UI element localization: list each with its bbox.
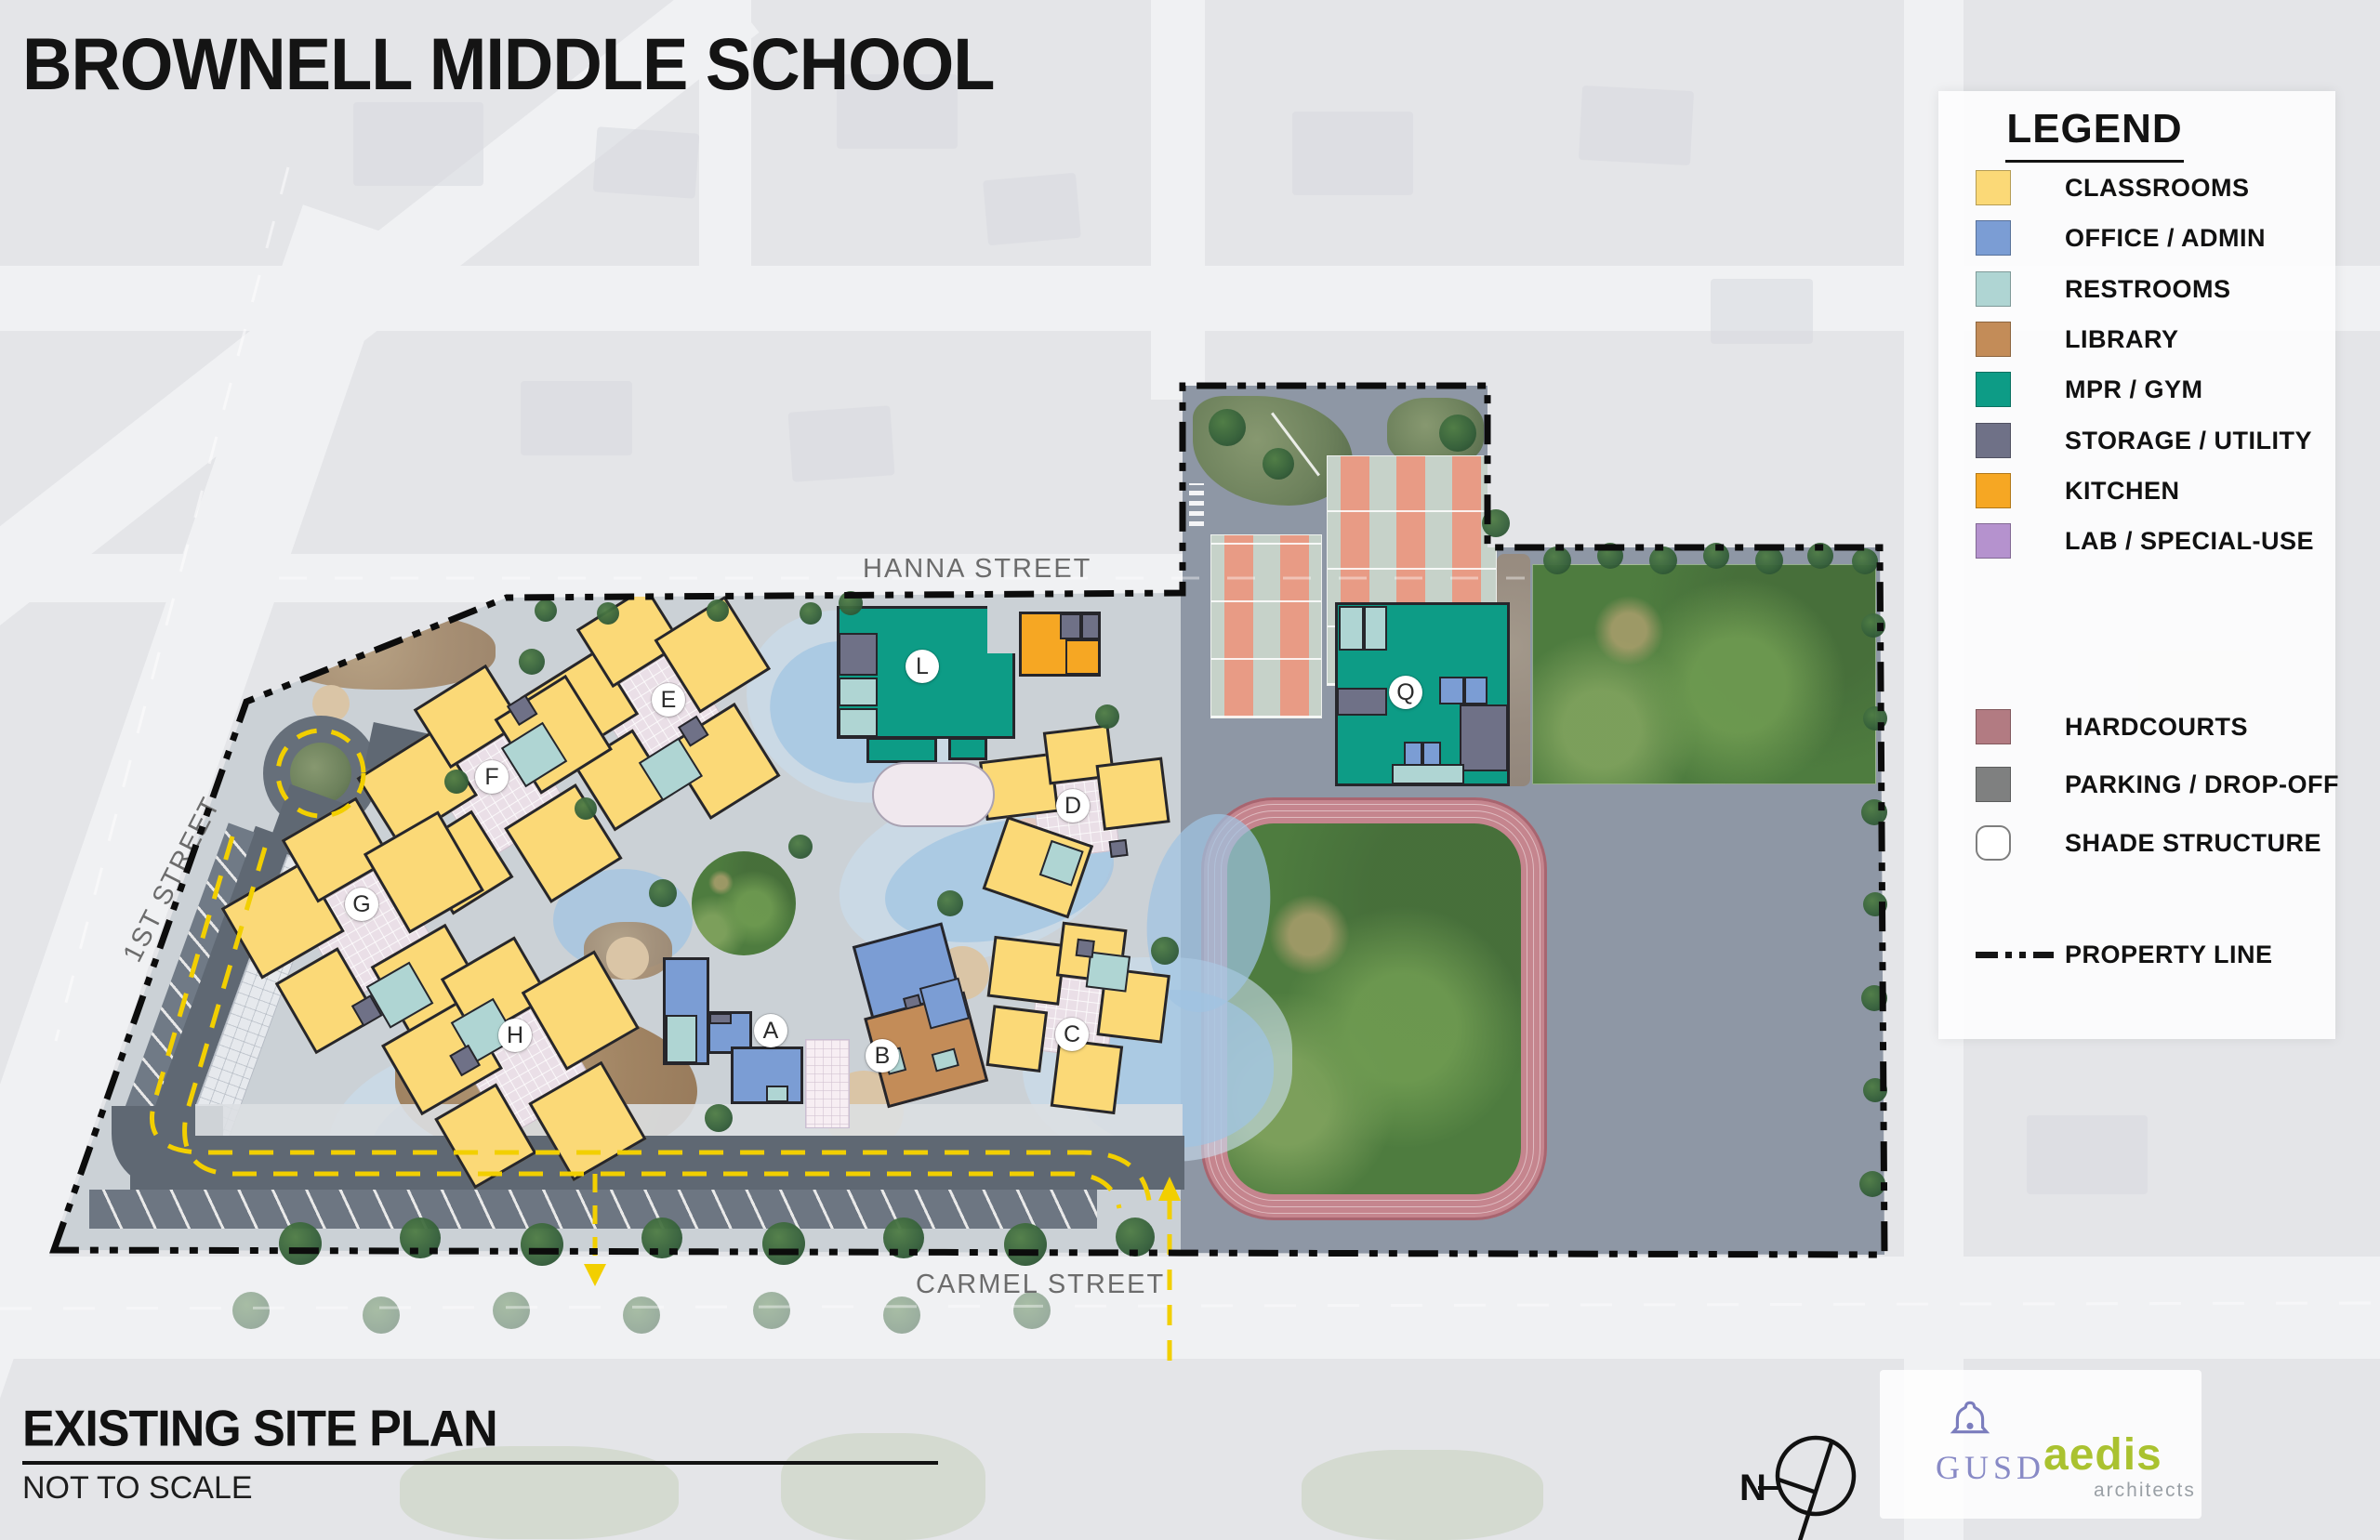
shade-canopy bbox=[805, 1039, 850, 1128]
plan-scale-note: NOT TO SCALE bbox=[22, 1470, 938, 1507]
legend-item-storage: STORAGE / UTILITY bbox=[1976, 423, 2312, 458]
marker-G: G bbox=[345, 888, 378, 921]
shade-structure bbox=[872, 762, 995, 827]
street-label-carmel: CARMEL STREET bbox=[916, 1270, 1165, 1300]
gusd-logo-text: GUSD bbox=[1936, 1448, 2045, 1487]
aedis-logo-subtext: architects bbox=[2094, 1480, 2196, 1502]
marker-C: C bbox=[1055, 1018, 1089, 1051]
angled-parking bbox=[89, 1190, 1097, 1229]
walkway bbox=[195, 1104, 1183, 1136]
shade-swatch bbox=[1976, 825, 2011, 861]
marker-B: B bbox=[866, 1039, 899, 1073]
marker-F: F bbox=[475, 760, 509, 794]
marker-Q: Q bbox=[1389, 676, 1422, 709]
crosswalk bbox=[1189, 483, 1204, 526]
library-swatch bbox=[1976, 322, 2011, 357]
dropoff-road bbox=[130, 1136, 1184, 1190]
gusd-bell-icon bbox=[1949, 1398, 1991, 1439]
site-plan-sheet: A B C D E F G H L Q HANNA STREET CARMEL … bbox=[0, 0, 2380, 1540]
legend-item-kitchen: KITCHEN bbox=[1976, 473, 2180, 508]
legend-panel: LEGEND CLASSROOMS OFFICE / ADMIN RESTROO… bbox=[1938, 91, 2335, 1039]
legend-item-mpr: MPR / GYM bbox=[1976, 372, 2203, 407]
practice-field bbox=[1532, 564, 1876, 784]
classrooms-swatch bbox=[1976, 170, 2011, 205]
hardcourts-swatch bbox=[1976, 709, 2011, 744]
plan-title: EXISTING SITE PLAN bbox=[22, 1400, 938, 1458]
logo-panel: GUSD aedis architects bbox=[1880, 1370, 2201, 1519]
aedis-logo-text: aedis bbox=[2043, 1429, 2162, 1481]
marker-D: D bbox=[1056, 789, 1090, 823]
legend-item-classrooms: CLASSROOMS bbox=[1976, 170, 2250, 205]
lab-swatch bbox=[1976, 523, 2011, 559]
building-D-classrooms bbox=[981, 726, 1176, 921]
legend-item-restrooms: RESTROOMS bbox=[1976, 271, 2231, 307]
marker-L: L bbox=[906, 650, 939, 683]
legend-item-lab: LAB / SPECIAL-USE bbox=[1976, 523, 2314, 559]
marker-A: A bbox=[754, 1014, 787, 1047]
marker-H: H bbox=[498, 1019, 532, 1052]
parking-swatch bbox=[1976, 767, 2011, 802]
legend-item-shade: SHADE STRUCTURE bbox=[1976, 825, 2321, 861]
mpr-swatch bbox=[1976, 372, 2011, 407]
marker-E: E bbox=[652, 683, 685, 717]
legend-item-parking: PARKING / DROP-OFF bbox=[1976, 767, 2339, 802]
play-field-circle bbox=[692, 851, 796, 955]
restrooms-swatch bbox=[1976, 271, 2011, 307]
north-arrow: N bbox=[1734, 1409, 1901, 1540]
legend-item-hardcourts: HARDCOURTS bbox=[1976, 709, 2248, 744]
page-title: BROWNELL MIDDLE SCHOOL bbox=[22, 22, 994, 106]
office-swatch bbox=[1976, 220, 2011, 256]
legend-item-property-line: PROPERTY LINE bbox=[1976, 941, 2273, 969]
legend-header: LEGEND bbox=[2005, 106, 2184, 163]
legend-item-library: LIBRARY bbox=[1976, 322, 2179, 357]
play-circle bbox=[606, 937, 649, 980]
plan-title-block: EXISTING SITE PLAN NOT TO SCALE bbox=[22, 1400, 938, 1507]
street-label-hanna: HANNA STREET bbox=[863, 554, 1091, 585]
title-rule bbox=[22, 1461, 938, 1465]
basketball-courts-west bbox=[1210, 534, 1322, 718]
property-line-sample bbox=[1976, 952, 2054, 958]
storage-swatch bbox=[1976, 423, 2011, 458]
kitchen-swatch bbox=[1976, 473, 2011, 508]
legend-item-office: OFFICE / ADMIN bbox=[1976, 220, 2266, 256]
